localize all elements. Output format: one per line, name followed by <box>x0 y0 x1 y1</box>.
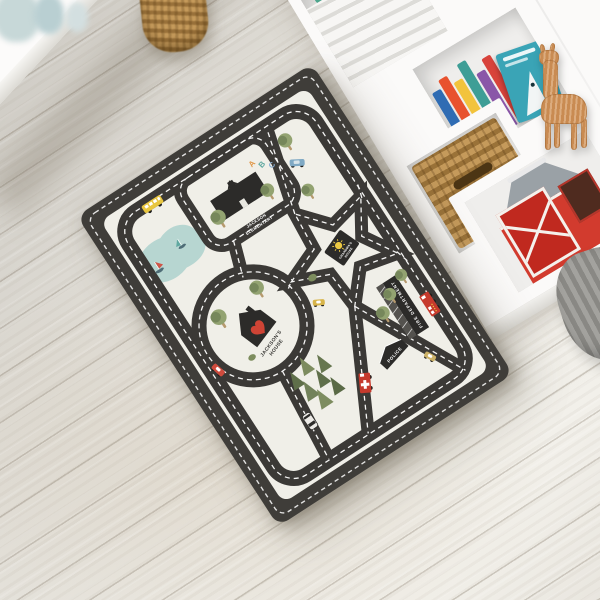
llama-figurine <box>537 50 595 152</box>
llama-body <box>541 94 587 124</box>
blue-vase <box>34 0 64 34</box>
scene: A B C JACKSON ELEMENTARY JACKSON'S HOUSE <box>0 0 600 600</box>
blue-vase <box>66 2 88 32</box>
